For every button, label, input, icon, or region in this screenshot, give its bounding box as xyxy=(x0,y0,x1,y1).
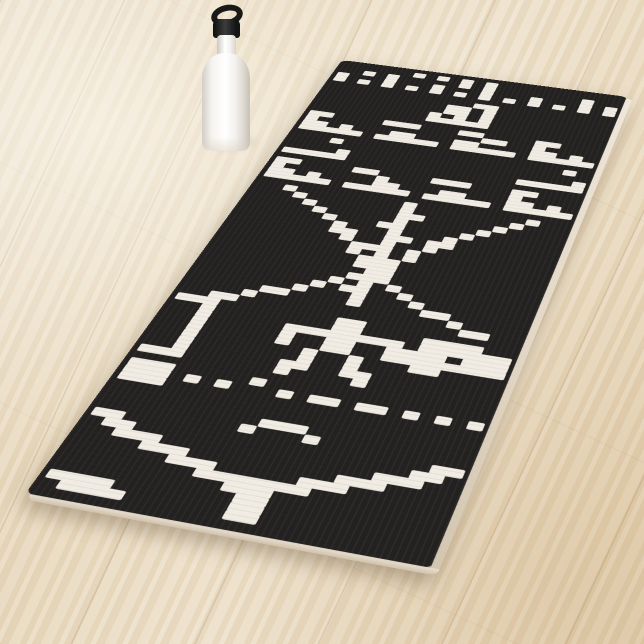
mat-pixel-grid xyxy=(25,60,628,569)
yoga-mat xyxy=(25,60,628,569)
product-photo-scene xyxy=(0,0,644,644)
water-bottle xyxy=(202,2,250,154)
mat-shadow xyxy=(0,0,644,644)
bottle-body xyxy=(202,53,250,151)
